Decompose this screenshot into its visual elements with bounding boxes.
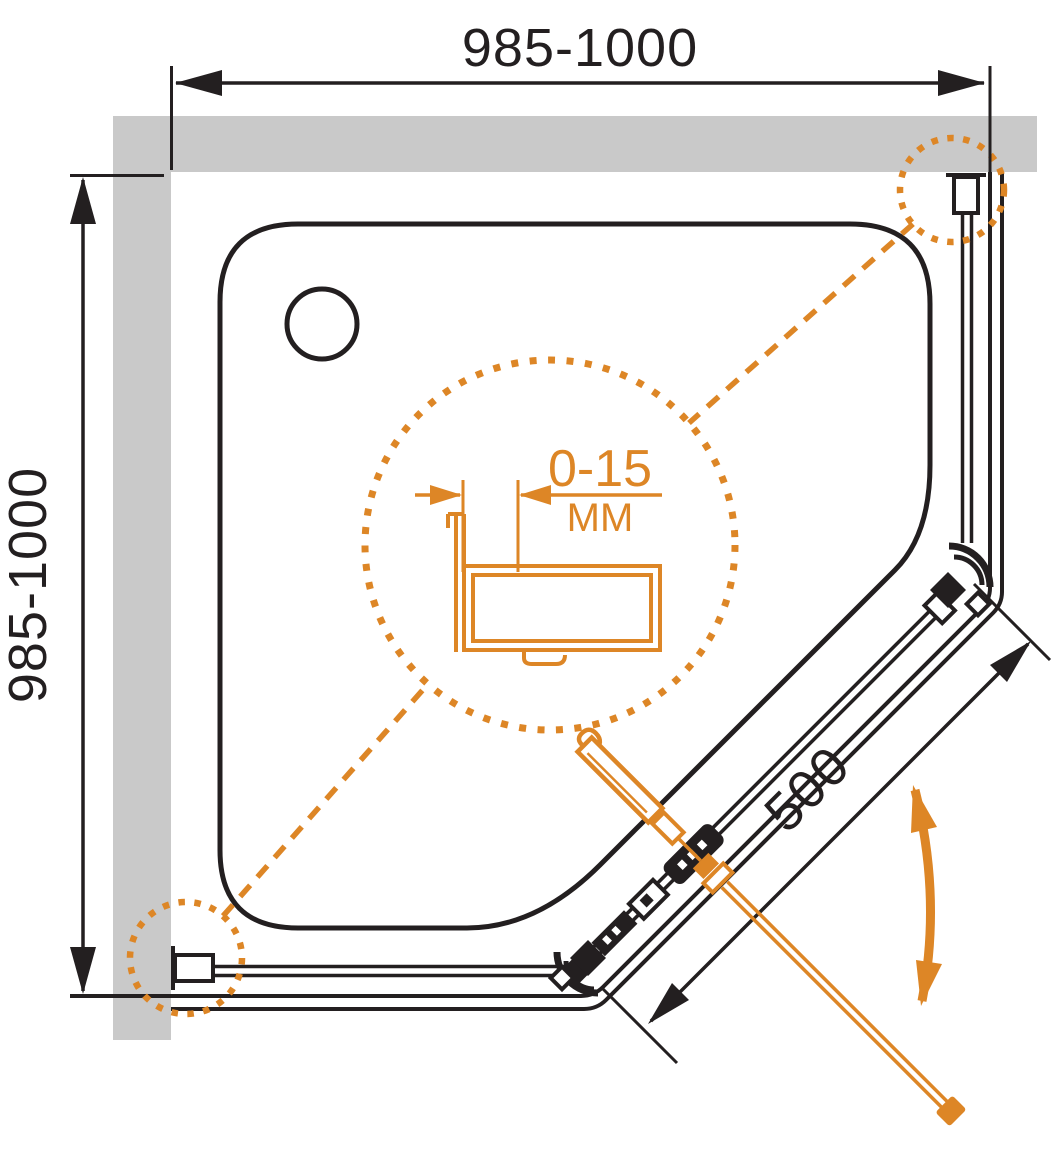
detail-range-label: 0-15: [548, 440, 652, 498]
door-open-glass-line: [727, 882, 948, 1103]
dim-left-label: 985-1000: [0, 467, 58, 703]
detail-unit-label: ММ: [567, 496, 634, 540]
wall-profile-bottom: [175, 955, 213, 981]
shower-enclosure-diagram: 0-15 ММ 985-1000: [0, 0, 1063, 1150]
dim-arrow-left-icon: [175, 70, 222, 96]
dim-arrow-up-icon: [70, 177, 96, 224]
wall-profile-top: [954, 177, 978, 213]
technical-drawing-page: 0-15 ММ 985-1000: [0, 0, 1063, 1150]
wall-left: [113, 116, 171, 1040]
dim-arrow-down-icon: [70, 947, 96, 994]
wall-top: [113, 116, 1037, 172]
dim-arrow-right-icon: [938, 70, 985, 96]
door-open-glass-line: [722, 887, 943, 1108]
swing-arrow-up-icon: [911, 785, 937, 833]
door-open-end-cap: [935, 1095, 966, 1126]
fixed-panel-bottom: [173, 946, 578, 990]
dim-top-label: 985-1000: [462, 18, 698, 78]
door-swing-arrow: [911, 785, 942, 1006]
